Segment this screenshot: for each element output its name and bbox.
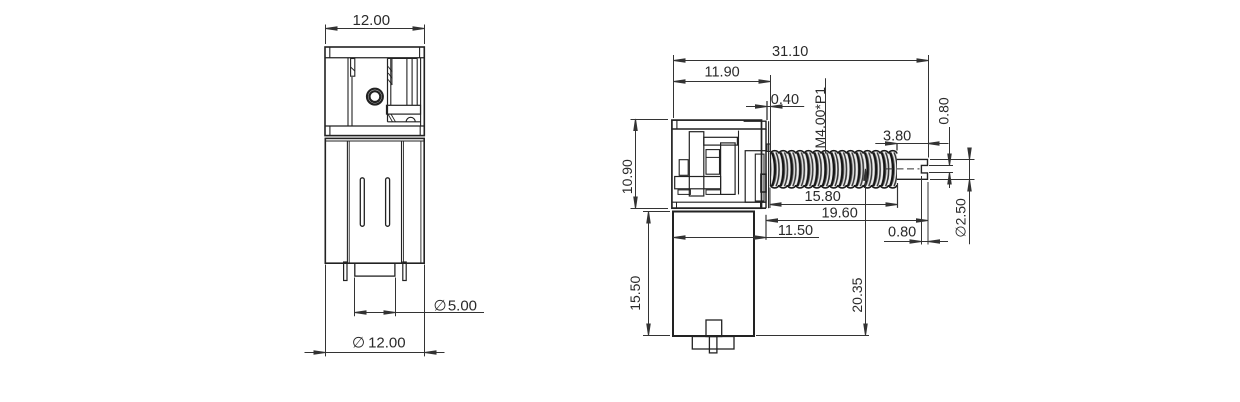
svg-text:∅2.50: ∅2.50 [953,198,969,238]
svg-text:0.80: 0.80 [936,97,952,124]
svg-text:3.80: 3.80 [883,128,911,144]
svg-text:10.90: 10.90 [619,159,635,194]
svg-text:∅ 12.00: ∅ 12.00 [352,334,406,351]
svg-text:11.90: 11.90 [705,65,740,81]
svg-text:12.00: 12.00 [353,12,391,29]
svg-text:0.40: 0.40 [771,92,799,108]
svg-text:15.50: 15.50 [627,276,643,311]
svg-text:20.35: 20.35 [849,277,865,312]
svg-text:∅ 5.00: ∅ 5.00 [434,298,478,315]
svg-text:15.80: 15.80 [805,189,841,205]
svg-text:M4.00*P1: M4.00*P1 [812,87,828,149]
svg-text:0.80: 0.80 [888,225,916,241]
svg-text:11.50: 11.50 [778,223,813,239]
svg-text:19.60: 19.60 [822,206,858,222]
svg-text:31.10: 31.10 [772,44,808,60]
